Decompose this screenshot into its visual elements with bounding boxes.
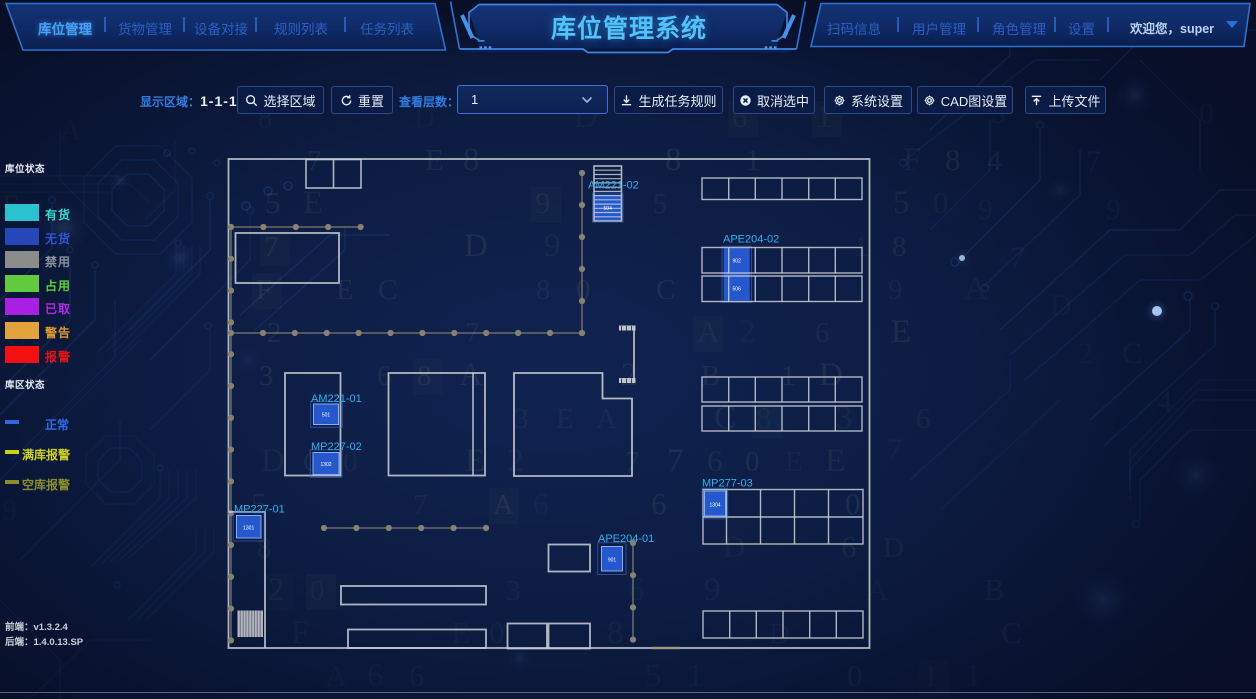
svg-text:506: 506	[733, 287, 742, 293]
svg-text:AM221-01: AM221-01	[311, 393, 362, 405]
svg-text:902: 902	[733, 259, 742, 265]
svg-text:MP227-01: MP227-01	[234, 504, 285, 516]
svg-text:1302: 1302	[320, 462, 331, 468]
svg-text:901: 901	[608, 558, 617, 564]
svg-text:MP227-02: MP227-02	[311, 441, 362, 453]
svg-text:AM221-02: AM221-02	[588, 180, 639, 192]
svg-text:1301: 1301	[243, 526, 254, 532]
svg-text:APE204-01: APE204-01	[598, 533, 654, 545]
svg-text:501: 501	[322, 413, 331, 419]
svg-text:1304: 1304	[709, 503, 720, 509]
svg-text:APE204-02: APE204-02	[723, 234, 779, 246]
svg-text:504: 504	[604, 206, 613, 212]
svg-text:MP277-03: MP277-03	[702, 478, 753, 490]
